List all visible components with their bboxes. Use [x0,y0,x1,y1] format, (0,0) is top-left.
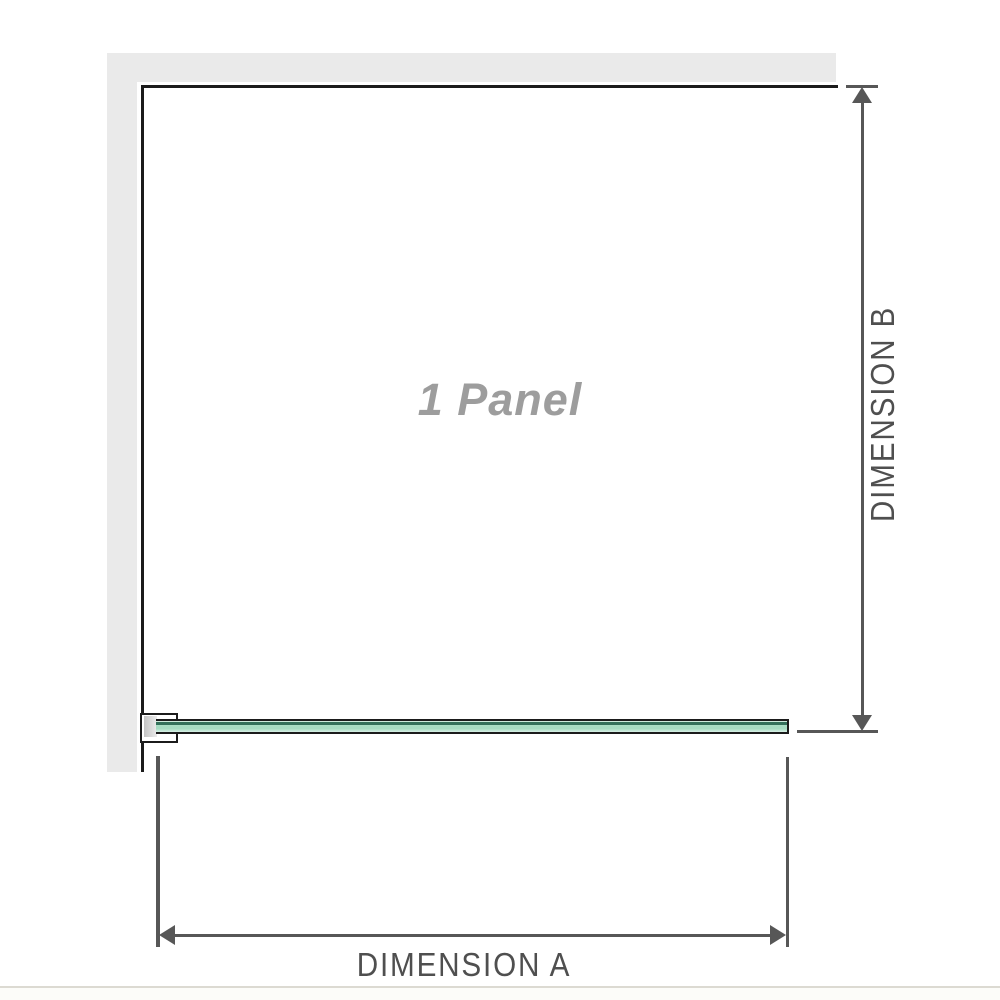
diagram-canvas: 1 Panel DIMENSION B DIMENSION A [0,0,1000,1000]
arrow-up-icon [852,87,872,103]
dimension-a-left-extension-line [156,756,160,947]
dimension-a-line [173,934,772,938]
arrow-down-icon [852,715,872,731]
arrow-right-icon [770,925,786,945]
enclosure-top-edge [141,85,838,88]
glass-panel [156,719,789,734]
footer-area [0,988,1000,1000]
dimension-a-label: DIMENSION A [357,946,572,984]
wall-top [107,53,836,82]
dimension-b-label: DIMENSION B [864,306,902,522]
wall-left [107,53,137,772]
panel-count-label: 1 Panel [418,374,583,426]
dimension-a-right-extension-line [786,757,790,947]
arrow-left-icon [159,925,175,945]
glass-panel-edge-line [156,722,787,725]
enclosure-left-edge [141,85,144,772]
